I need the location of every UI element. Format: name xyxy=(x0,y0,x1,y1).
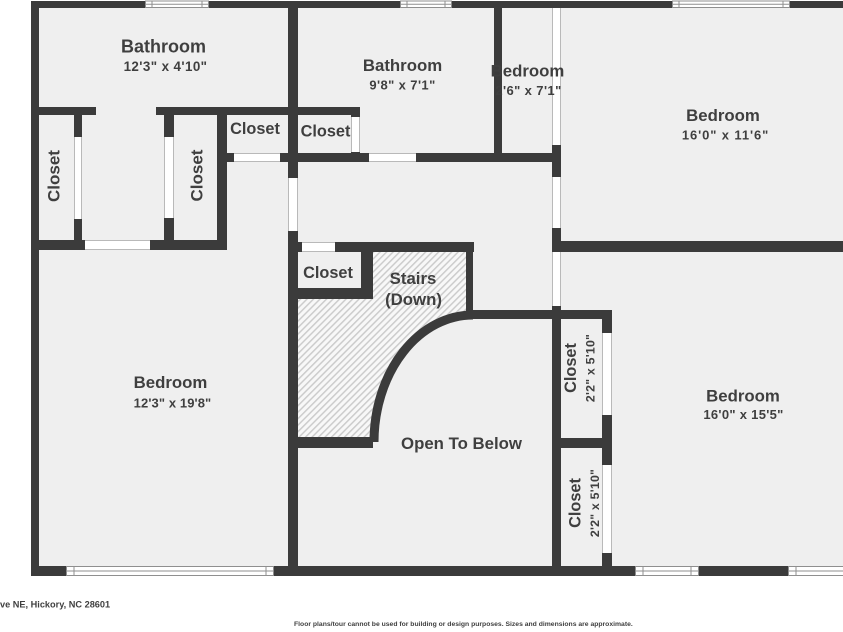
svg-text:2'2" x 5'10": 2'2" x 5'10" xyxy=(584,334,598,402)
svg-text:12'3" x 4'10": 12'3" x 4'10" xyxy=(124,59,208,74)
svg-text:Bedroom: Bedroom xyxy=(134,373,208,392)
svg-text:9'8" x 7'1": 9'8" x 7'1" xyxy=(369,78,435,93)
svg-text:Bathroom: Bathroom xyxy=(363,56,442,75)
svg-text:Floor plans/tour cannot be use: Floor plans/tour cannot be used for buil… xyxy=(294,621,633,628)
svg-text:12'3" x 19'8": 12'3" x 19'8" xyxy=(134,396,212,411)
svg-text:2'2" x 5'10": 2'2" x 5'10" xyxy=(588,469,602,537)
svg-text:16'0" x 15'5": 16'0" x 15'5" xyxy=(703,407,783,422)
svg-text:Closet: Closet xyxy=(567,478,585,528)
svg-text:Stairs: Stairs xyxy=(390,269,437,288)
svg-text:ve NE, Hickory, NC 28601: ve NE, Hickory, NC 28601 xyxy=(0,600,110,610)
svg-text:Closet: Closet xyxy=(301,123,351,141)
svg-text:Bedroom: Bedroom xyxy=(686,106,760,125)
svg-text:Open To Below: Open To Below xyxy=(401,434,523,453)
svg-text:Bedroom: Bedroom xyxy=(491,62,565,81)
svg-text:Bathroom: Bathroom xyxy=(121,37,206,57)
svg-text:Closet: Closet xyxy=(188,149,207,201)
svg-text:Bedroom: Bedroom xyxy=(706,387,780,406)
svg-text:Closet: Closet xyxy=(303,264,353,282)
svg-text:2'6" x 7'1": 2'6" x 7'1" xyxy=(495,83,561,98)
svg-text:16'0" x 11'6": 16'0" x 11'6" xyxy=(682,128,769,143)
svg-text:Closet: Closet xyxy=(45,150,64,202)
svg-text:(Down): (Down) xyxy=(385,290,442,309)
svg-text:Closet: Closet xyxy=(230,120,280,138)
svg-text:Closet: Closet xyxy=(562,343,580,393)
